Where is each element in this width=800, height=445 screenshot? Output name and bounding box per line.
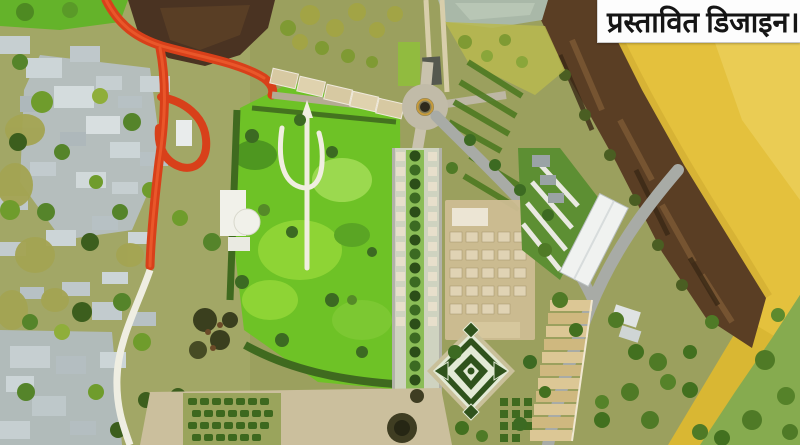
proposed-design-aerial-rendering: प्रस्तावित डिजाइन। — [0, 0, 800, 445]
roundabout-monument — [420, 102, 430, 112]
headline-banner: प्रस्तावित डिजाइन। — [597, 0, 800, 43]
site-plan-canvas — [0, 0, 800, 445]
nursery-bush-grid — [183, 393, 281, 445]
market-promenade — [392, 148, 442, 398]
promenade-trees — [410, 151, 421, 386]
headline-text: प्रस्तावित डिजाइन। — [607, 2, 800, 41]
loop-building — [176, 120, 192, 146]
